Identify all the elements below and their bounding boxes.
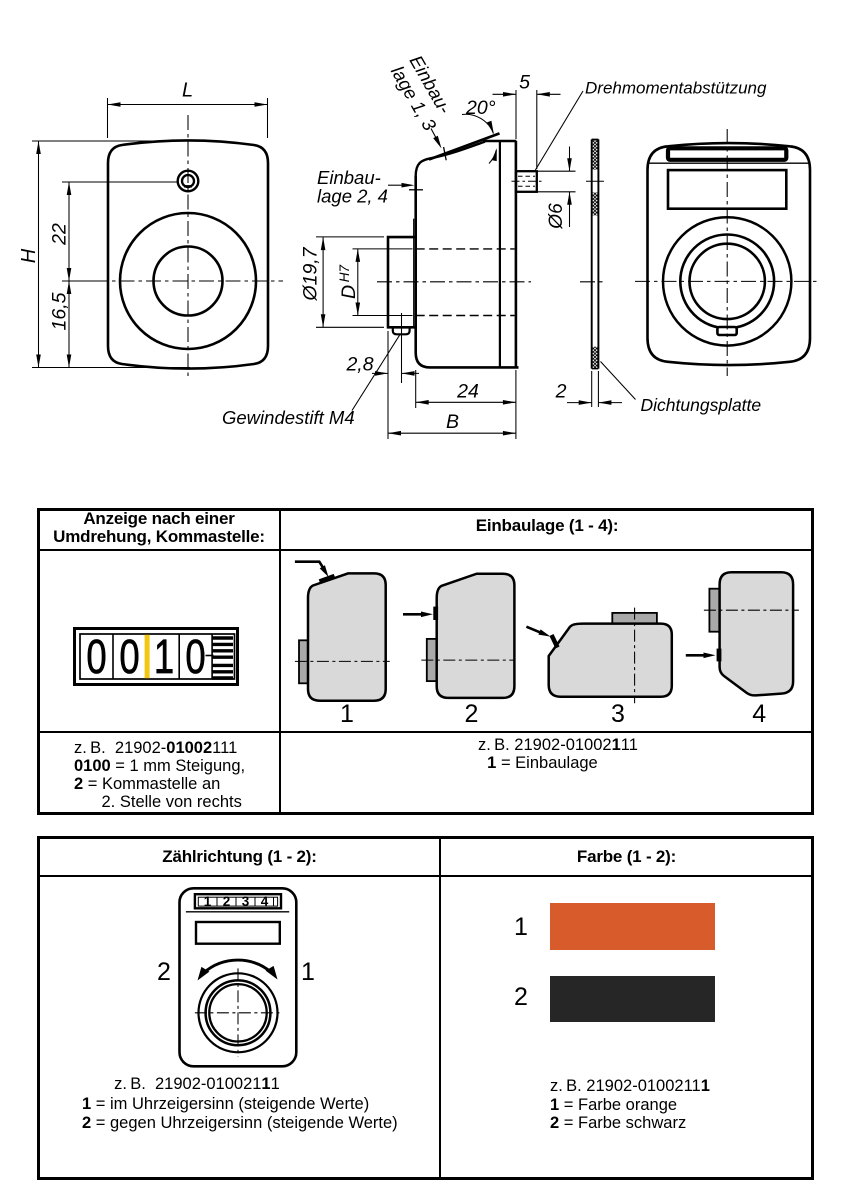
- svg-text:3: 3: [242, 894, 250, 909]
- svg-text:Gewindestift M4: Gewindestift M4: [222, 407, 355, 428]
- svg-text:22: 22: [49, 223, 71, 246]
- svg-text:4: 4: [752, 700, 766, 728]
- svg-text:0: 0: [185, 630, 205, 684]
- svg-text:2: 2: [464, 700, 478, 728]
- svg-text:2: 2: [223, 894, 231, 909]
- svg-text:1: 1: [340, 700, 354, 728]
- svg-text:16,5: 16,5: [49, 292, 71, 330]
- svg-text:1: 1: [154, 630, 174, 684]
- svg-text:24: 24: [456, 381, 479, 403]
- svg-text:Ø19,7: Ø19,7: [300, 246, 322, 301]
- svg-text:20°: 20°: [465, 97, 496, 119]
- svg-text:0: 0: [86, 630, 106, 684]
- svg-text:H: H: [18, 248, 40, 263]
- svg-text:2: 2: [555, 381, 567, 403]
- svg-text:D H7: D H7: [337, 264, 360, 299]
- svg-text:lage 2, 4: lage 2, 4: [317, 186, 388, 207]
- svg-text:3: 3: [611, 700, 625, 728]
- svg-text:1: 1: [204, 894, 212, 909]
- svg-text:2,8: 2,8: [345, 354, 373, 376]
- svg-text:L: L: [182, 80, 193, 102]
- svg-text:5: 5: [519, 72, 530, 94]
- svg-text:B: B: [446, 411, 459, 433]
- svg-text:Ø6: Ø6: [546, 203, 567, 230]
- svg-text:0: 0: [119, 630, 139, 684]
- svg-text:Dichtungsplatte: Dichtungsplatte: [641, 395, 762, 415]
- svg-text:Drehmomentabstützung: Drehmomentabstützung: [585, 79, 767, 98]
- svg-text:4: 4: [261, 894, 269, 909]
